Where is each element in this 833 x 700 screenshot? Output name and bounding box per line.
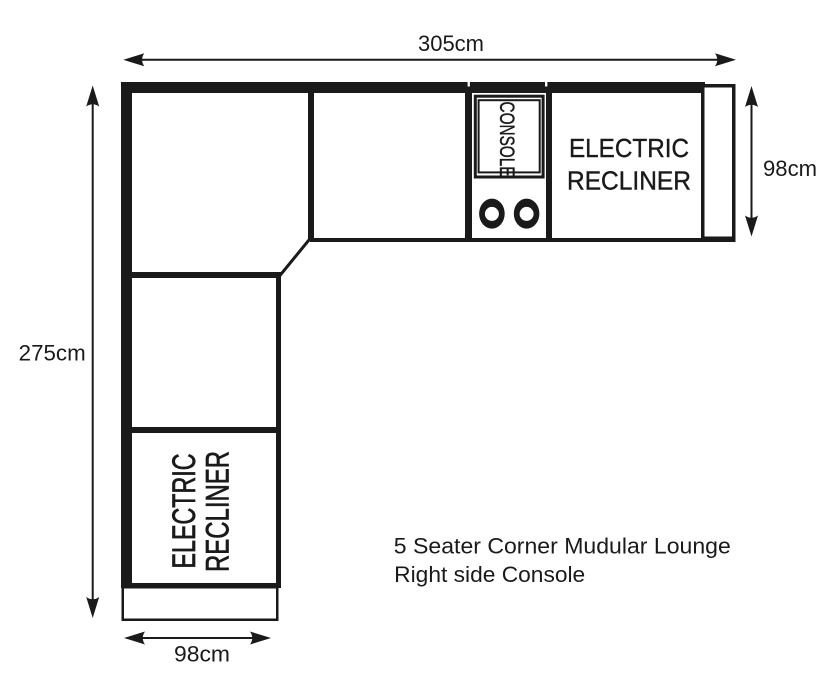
svg-text:98cm: 98cm (174, 642, 230, 667)
svg-text:Right side Console: Right side Console (394, 562, 585, 587)
svg-text:275cm: 275cm (19, 341, 86, 366)
svg-text:ELECTRIC: ELECTRIC (166, 454, 202, 569)
svg-text:5 Seater Corner Mudular Lounge: 5 Seater Corner Mudular Lounge (394, 534, 731, 559)
svg-text:CONSOLE: CONSOLE (495, 102, 518, 177)
svg-text:98cm: 98cm (763, 156, 817, 181)
svg-text:ELECTRIC: ELECTRIC (569, 133, 689, 163)
svg-text:305cm: 305cm (418, 31, 484, 56)
svg-text:RECLINER: RECLINER (200, 451, 236, 572)
svg-text:RECLINER: RECLINER (567, 165, 691, 195)
